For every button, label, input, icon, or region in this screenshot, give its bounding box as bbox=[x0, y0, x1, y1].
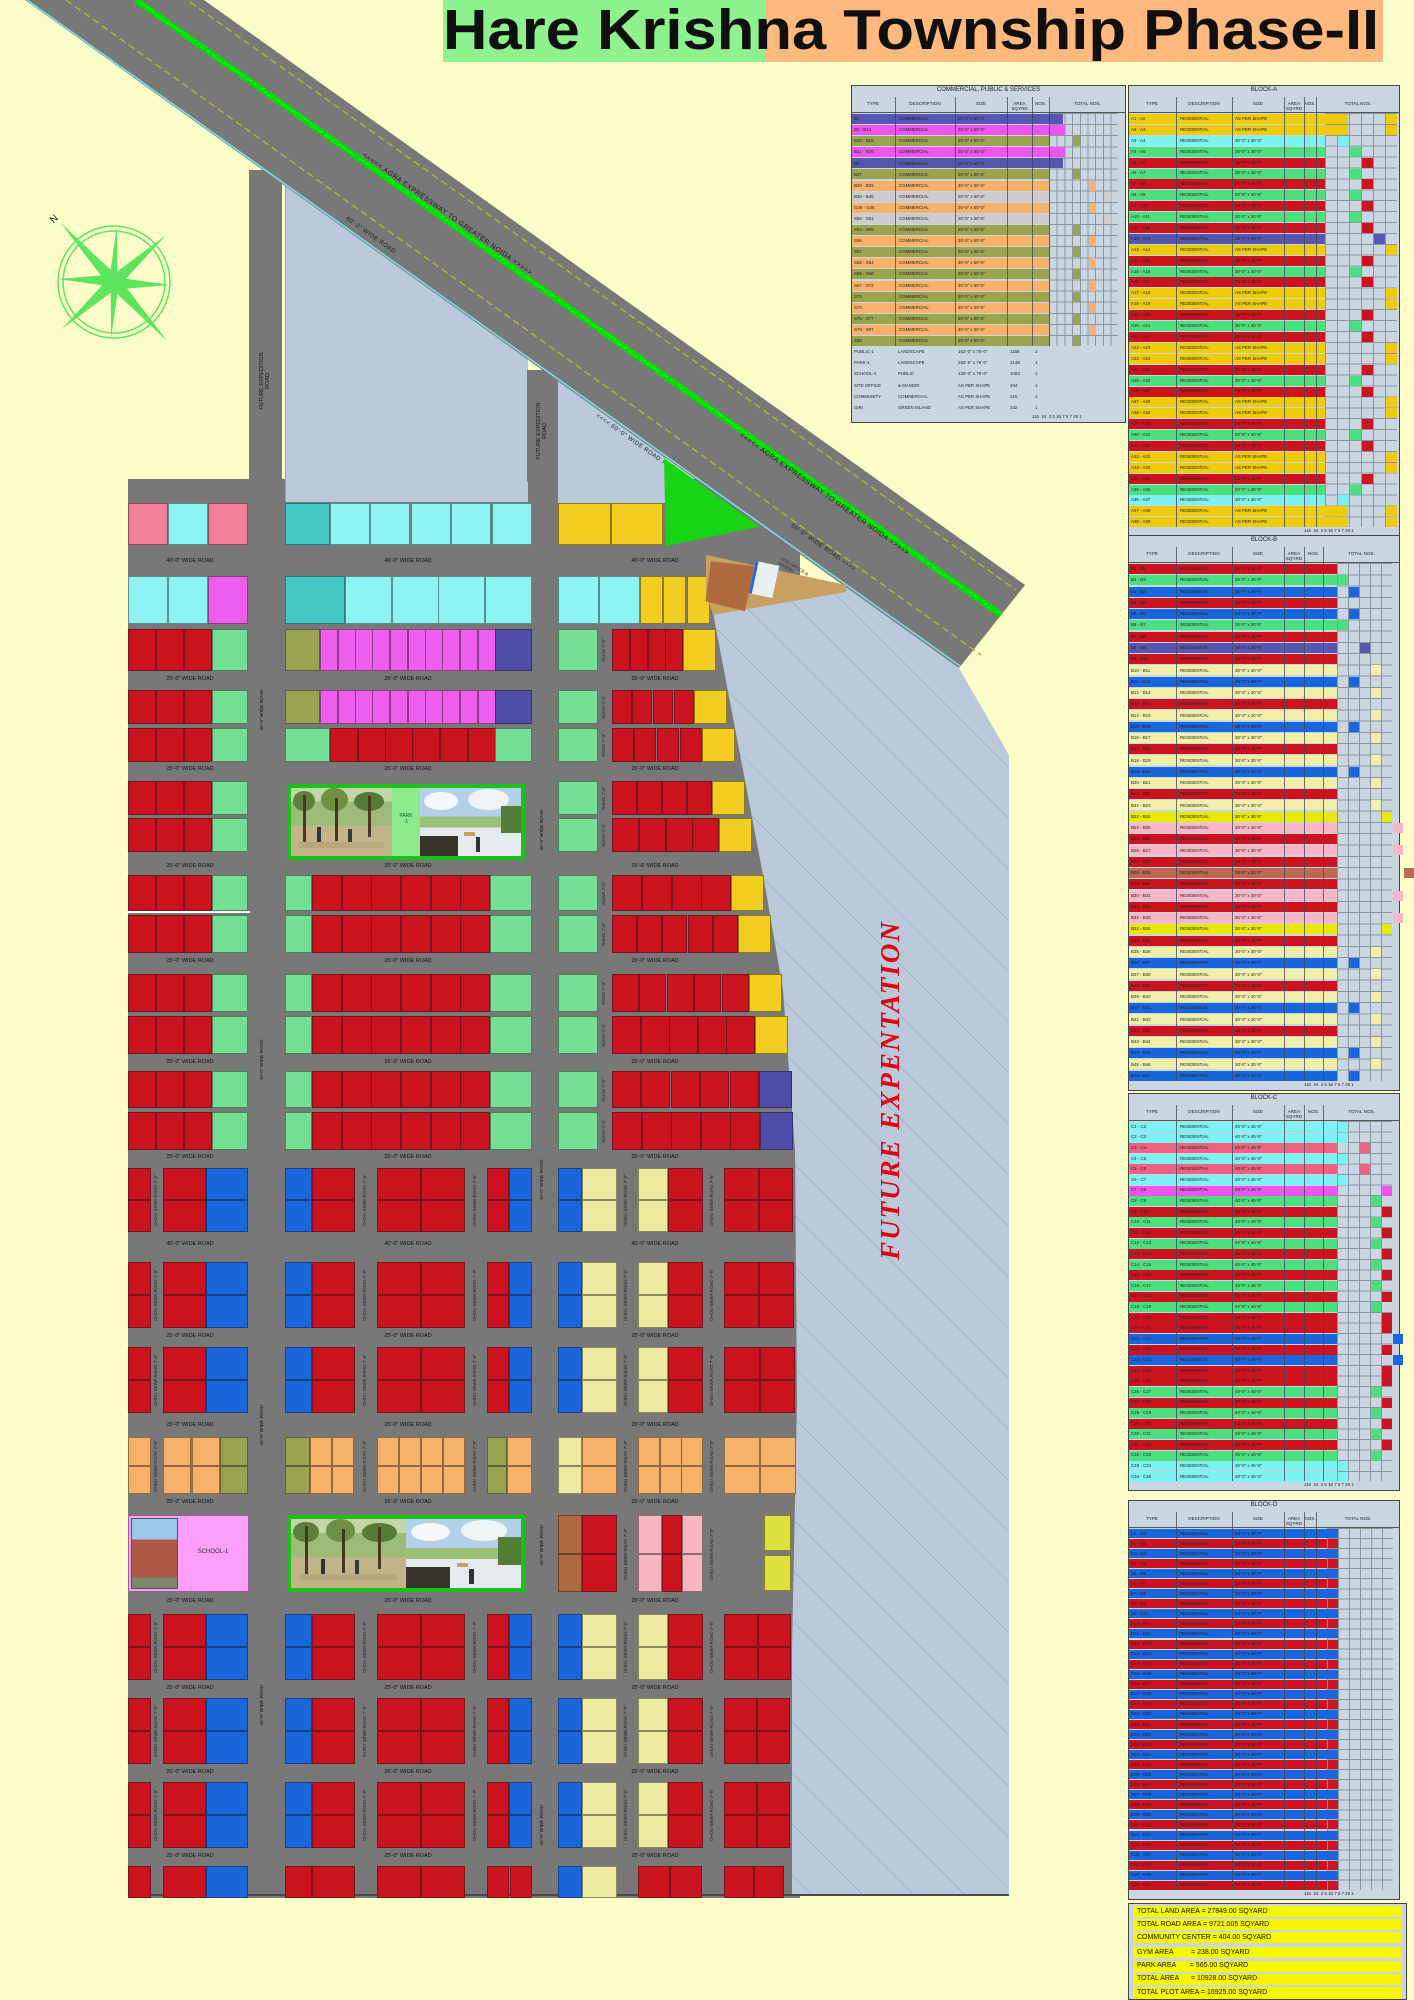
svg-text:N: N bbox=[48, 213, 61, 226]
